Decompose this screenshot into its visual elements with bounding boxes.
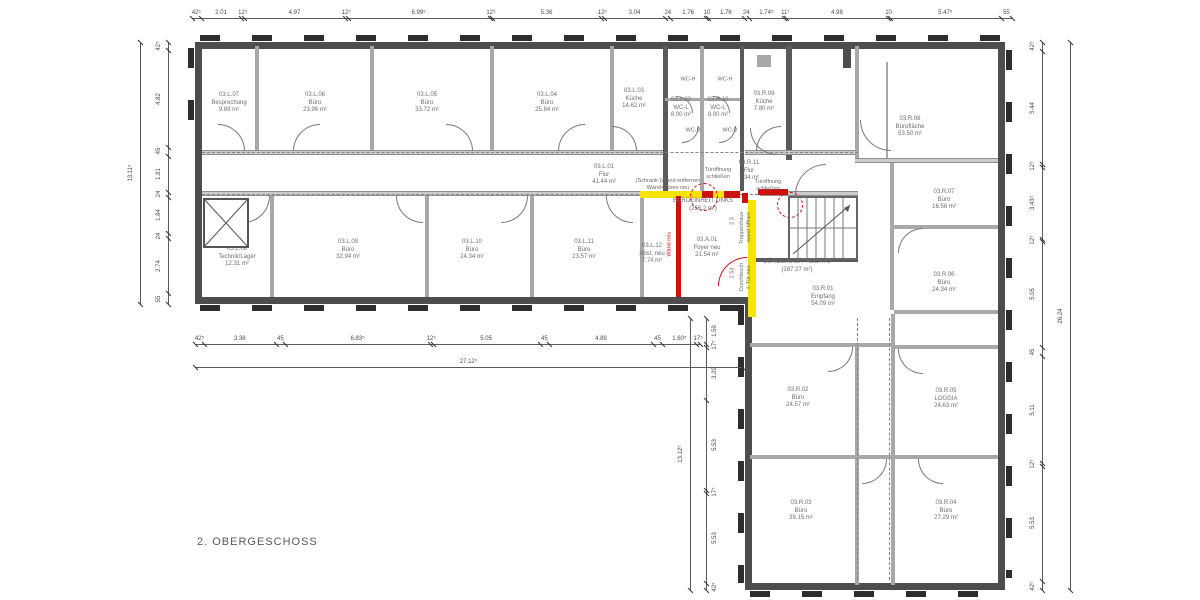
dim-value: 42⁵ [1030, 42, 1036, 51]
room-name: Abst. neu [639, 250, 664, 258]
room-id: 03.R.02 [787, 387, 808, 395]
wall [738, 305, 744, 583]
room-label-03.L.02: 03.L.02WC-L8.00 m² [671, 97, 691, 120]
wall [195, 42, 1005, 49]
room-area: 53.50 m² [898, 131, 922, 139]
room-id: 03.A.01 [697, 237, 718, 245]
dim-value: 12⁵ [1030, 236, 1036, 245]
room-name: Büro [466, 246, 479, 254]
room-label-03.R.06: 03.R.06Büro24.34 m² [932, 272, 956, 295]
room-label-03.R.07: 03.R.07Büro16.56 m² [932, 189, 956, 212]
room-area: 8.00 m² [708, 112, 728, 120]
room-name: Flur [744, 167, 754, 175]
elevator-shaft [203, 198, 249, 248]
dim-value: 24 [156, 191, 162, 198]
wall [200, 35, 1000, 41]
room-id: 03.L.07 [219, 92, 239, 100]
room-area: 12.31 m² [225, 261, 249, 269]
annotation-new-wall: Wand neu [666, 232, 673, 257]
room-id: 03.R.05 [935, 388, 956, 396]
room-area: 23.57 m² [572, 254, 596, 262]
room-id: 03.L.09 [338, 239, 358, 247]
dim-value: 12⁵ [598, 10, 607, 16]
room-area: 54.09 m² [811, 301, 835, 309]
wc-label: WC-D [723, 127, 738, 134]
dim-value: 4.98 [831, 10, 843, 16]
stairs [788, 196, 858, 260]
room-label-03.L.09: 03.L.09Büro32.94 m² [336, 239, 360, 262]
room-name: Büro [342, 246, 355, 254]
overall-dimension-line [1070, 42, 1071, 590]
room-label-03.R.02: 03.R.02Büro24.57 m² [786, 387, 810, 410]
dim-value: 2.74 [156, 260, 162, 272]
wall [195, 297, 752, 304]
wall [200, 305, 748, 311]
room-label-03.L.04: 03.L.04Büro25.84 m² [535, 92, 559, 115]
room-name: LOGGIA [934, 395, 957, 403]
room-name: WC-L [673, 104, 688, 112]
dim-value: 10 [885, 10, 892, 16]
room-area: 7.80 m² [754, 106, 774, 114]
door-arc [898, 349, 923, 374]
wall [843, 42, 851, 68]
door-arc [898, 228, 923, 253]
dim-value: 42⁵ [1030, 581, 1036, 590]
dimension-line [706, 318, 707, 590]
dim-value: 42⁵ [192, 10, 201, 16]
new-wall-mark [724, 191, 740, 198]
annotation-dim: 2.3 [729, 217, 736, 225]
overall-dimension-line [690, 318, 691, 590]
dim-value: 3.38 [234, 336, 246, 342]
room-label-03.R.03: 03.R.03Büro39.15 m² [789, 500, 813, 523]
room-label-03.L.10: 03.L.10Büro24.34 m² [460, 239, 484, 262]
wall [895, 455, 998, 459]
door-arc [828, 347, 853, 372]
dim-value: 1.60⁵ [672, 336, 686, 342]
wall [894, 225, 998, 229]
room-name: Flur [599, 171, 609, 179]
dim-value: 11¹ [781, 10, 789, 16]
dim-value: 12⁵ [238, 10, 247, 16]
room-area: 41.44 m² [592, 179, 616, 187]
room-name: Küche [755, 98, 772, 106]
dashed-line [202, 152, 858, 153]
dim-value: 1.81 [156, 168, 162, 180]
wall [370, 46, 374, 152]
dim-value: 5.53 [712, 532, 718, 544]
unit-label-left: BÜROEINHEIT LINKS (256.2 m²) [673, 198, 733, 214]
room-id: 03.R.06 [933, 272, 954, 280]
dim-value: 45 [156, 148, 162, 155]
room-id: 03.L.01 [594, 164, 614, 172]
room-label-03.L.08: 03.L.08Technik/Lager12.31 m² [218, 246, 255, 269]
wall [750, 343, 892, 347]
dim-value: 42⁵ [712, 582, 718, 591]
door-arc [862, 459, 887, 484]
room-label-03.L.12: 03.L.12Abst. neu7.74 m² [639, 243, 664, 266]
wall [855, 46, 859, 160]
dimension-line [168, 42, 169, 304]
room-id: 03.L.12 [642, 243, 662, 251]
room-name: Büro [792, 394, 805, 402]
room-label-03.R.09: 03.R.09Küche7.80 m² [753, 91, 774, 114]
dim-value: 42⁵ [156, 42, 162, 51]
room-id: 03.R.08 [899, 116, 920, 124]
room-name: Büro [940, 507, 953, 515]
room-id: 03.R.10 [707, 97, 728, 105]
door-arc [606, 196, 633, 223]
room-name: Technik/Lager [218, 253, 255, 261]
room-id: 03.L.06 [305, 92, 325, 100]
wall [530, 196, 534, 297]
wall [757, 55, 771, 67]
room-name: Büro [541, 99, 554, 107]
wc-label: WC-H [718, 76, 733, 83]
door-arc [795, 164, 826, 195]
wall [195, 42, 202, 304]
dim-value: 17⁵ [712, 487, 718, 496]
dim-value: 1.84 [156, 209, 162, 221]
wall [891, 314, 895, 585]
wall [490, 46, 494, 152]
dashed-line [857, 318, 858, 580]
dim-value: 5.05 [480, 336, 492, 342]
wall [894, 310, 998, 314]
dim-value: 4.89 [595, 336, 607, 342]
room-name: Büro [578, 246, 591, 254]
annotation-dim: 2.53 [729, 268, 736, 279]
room-name: WC-L [710, 104, 725, 112]
dim-value: 45 [654, 336, 661, 342]
wall [1006, 50, 1012, 578]
room-label-03.R.04: 03.R.04Büro27.29 m² [934, 500, 958, 523]
room-id: 03.L.03 [624, 88, 644, 96]
room-name: Besprechung [211, 99, 246, 107]
annotation-close-door: Türöffnung schließen [705, 167, 732, 181]
room-area: 14.62 m² [622, 103, 646, 111]
dim-value: 1.76 [720, 10, 732, 16]
room-area: 9.69 m² [219, 107, 239, 115]
room-area: 7.74 m² [642, 258, 662, 266]
wall [270, 196, 274, 297]
room-name: Büro [938, 279, 951, 287]
room-label-03.L.05: 03.L.05Büro33.72 m² [415, 92, 439, 115]
room-area: 24.63 m² [934, 403, 958, 411]
dashed-line [889, 318, 890, 580]
room-area: 24.34 m² [460, 254, 484, 262]
wall [998, 42, 1005, 590]
room-area: 8.00 m² [671, 112, 691, 120]
wall [188, 48, 194, 152]
dim-value: 45 [277, 336, 284, 342]
room-label-03.L.07: 03.L.07Besprechung9.69 m² [211, 92, 246, 115]
room-name: Foyer neu [693, 244, 720, 252]
room-label-03.L.01: 03.L.01Flur41.44 m² [592, 164, 616, 187]
room-name: Büro [421, 99, 434, 107]
dim-value: 5.44 [1030, 102, 1036, 114]
dim-value: 24 [743, 10, 750, 16]
wall [663, 46, 668, 191]
door-arc [396, 196, 423, 223]
door-arc [918, 459, 943, 484]
wc-label: WC-D [686, 127, 701, 134]
door-arc [293, 124, 320, 151]
room-label-03.L.11: 03.L.11Büro23.57 m² [572, 239, 596, 262]
door-arc [446, 124, 473, 151]
dim-value: 5.53 [1030, 518, 1036, 530]
dim-value: 4.82 [156, 93, 162, 105]
door-arc [860, 120, 891, 151]
dim-value: 1.74⁵ [759, 10, 773, 16]
dim-value: 12⁵ [342, 10, 351, 16]
room-area: 16.56 m² [932, 204, 956, 212]
annotation-breakthrough: Durchbruch f. Tür neu [739, 263, 753, 291]
dim-value: 1.59 [712, 325, 718, 337]
dim-value: 42⁵ [195, 336, 204, 342]
room-id: 03.L.05 [417, 92, 437, 100]
annotation-close-door: Türöffnung schließen [755, 179, 782, 193]
overall-dim-value: 13.11⁵ [128, 164, 134, 181]
annotation-remove-wall: (Schrank-)Wand entfernen Wand+Türen neu [636, 178, 701, 192]
room-id: 03.R.04 [935, 500, 956, 508]
dim-value: 45 [541, 336, 548, 342]
room-name: Büro [938, 196, 951, 204]
overall-dimension-line [195, 367, 742, 368]
door-arc [558, 124, 585, 151]
room-area: 39.15 m² [789, 515, 813, 523]
dimension-line [1042, 42, 1043, 590]
dim-value: 5.47⁵ [938, 10, 952, 16]
room-area: 21.54 m² [695, 252, 719, 260]
dim-value: 5.53 [712, 439, 718, 451]
dim-value: 17⁵ [694, 336, 703, 342]
room-area: 24.34 m² [932, 287, 956, 295]
room-area: 25.84 m² [535, 107, 559, 115]
wc-label: WC-H [681, 76, 696, 83]
room-id: 03.R.01 [812, 286, 833, 294]
wall [855, 158, 998, 163]
dim-value: 3.04 [629, 10, 641, 16]
room-label-03.R.01: 03.R.01Empfang54.09 m² [811, 286, 835, 309]
room-area: 32.94 m² [336, 254, 360, 262]
room-label-03.L.03: 03.L.03Küche14.62 m² [622, 88, 646, 111]
overall-dimension-line [140, 42, 141, 304]
dim-value: 6.83⁵ [350, 336, 364, 342]
overall-dim-value: 26.24 [1058, 308, 1064, 323]
room-id: 03.R.03 [790, 500, 811, 508]
wall [425, 196, 429, 297]
wall [890, 163, 894, 310]
door-arc [218, 124, 245, 151]
room-area: 27.29 m² [934, 515, 958, 523]
unit-label-right: BÜROEINHEIT RECHTS (287.27 m²) [763, 259, 830, 275]
dim-value: 12⁵ [1030, 161, 1036, 170]
room-id: 03.L.04 [537, 92, 557, 100]
room-name: Büro [309, 99, 322, 107]
dim-value: 4.97 [289, 10, 301, 16]
room-name: Empfang [811, 293, 835, 301]
room-label-03.R.10: 03.R.10WC-L8.00 m² [707, 97, 728, 120]
room-area: 23.96 m² [303, 107, 327, 115]
room-name: Küche [625, 95, 642, 103]
wall [750, 591, 998, 597]
door-arc [612, 126, 637, 151]
room-id: 03.R.11 [739, 160, 760, 168]
room-label-03.R.08: 03.R.08Bürofläche53.50 m² [896, 116, 925, 139]
room-name: Büro [795, 507, 808, 515]
annotation-open-stair-wall: Treppenhaus- wand öffnen [739, 210, 753, 244]
wall [786, 46, 792, 160]
room-label-03.A.01: 03.A.01Foyer neu21.54 m² [693, 237, 720, 260]
dim-value: 24 [156, 233, 162, 240]
floorplan-canvas: 03.L.07Besprechung9.69 m²03.L.06Büro23.9… [0, 0, 1200, 600]
room-id: 03.R.09 [753, 91, 774, 99]
room-area: 33.72 m² [415, 107, 439, 115]
room-id: 03.L.10 [462, 239, 482, 247]
dim-value: 5.05 [1030, 288, 1036, 300]
dim-value: 17⁵ [712, 341, 718, 350]
room-label-03.R.05: 03.R.05LOGGIA24.63 m² [934, 388, 958, 411]
door-arc [501, 196, 528, 223]
dim-value: 3.29 [712, 368, 718, 380]
dim-value: 1.76 [682, 10, 694, 16]
dim-value: 5.36 [541, 10, 553, 16]
room-label-03.L.06: 03.L.06Büro23.96 m² [303, 92, 327, 115]
floor-title: 2. OBERGESCHOSS [197, 536, 318, 548]
dim-value: 2.01 [215, 10, 227, 16]
overall-dim-value: 13.12⁵ [678, 445, 684, 463]
dim-value: 3.43⁵ [1030, 196, 1036, 210]
wall [700, 46, 704, 191]
dim-value: 55 [156, 295, 162, 302]
dim-value: 12⁵ [486, 10, 495, 16]
dim-value: 10 [704, 10, 711, 16]
dimension-line [195, 344, 700, 345]
dim-value: 24 [664, 10, 671, 16]
dim-value: 55 [1003, 10, 1010, 16]
room-area: 24.57 m² [786, 402, 810, 410]
dim-value: 12⁵ [1030, 460, 1036, 469]
room-name: Bürofläche [896, 123, 925, 131]
room-id: 03.L.02 [671, 97, 691, 105]
dim-value: 5.11 [1030, 404, 1036, 415]
room-id: 03.R.07 [933, 189, 954, 197]
dim-value: 45 [1030, 348, 1036, 355]
wall [745, 583, 1005, 590]
wall [745, 297, 752, 590]
overall-dim-value: 27.12⁵ [460, 359, 478, 365]
dim-value: 6.99⁵ [411, 10, 425, 16]
wall [255, 46, 259, 152]
room-id: 03.L.11 [574, 239, 594, 247]
dim-value: 12⁵ [427, 336, 436, 342]
